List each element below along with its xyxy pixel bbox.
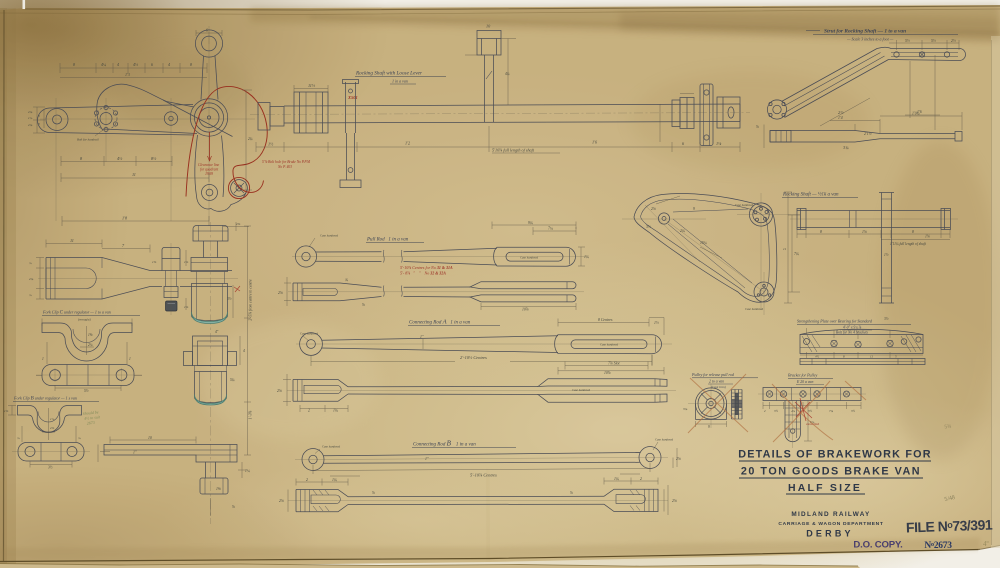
svg-text:1'-3⅞: 1'-3⅞ <box>249 410 253 419</box>
svg-text:2¾: 2¾ <box>680 229 685 233</box>
svg-text:1'2: 1'2 <box>405 141 410 146</box>
svg-text:2: 2 <box>306 478 308 482</box>
svg-text:5'-10⅞ Centres: 5'-10⅞ Centres <box>470 473 497 478</box>
svg-text:1″: 1″ <box>420 335 424 339</box>
svg-text:Bolt for No 4 brackets: Bolt for No 4 brackets <box>836 331 869 335</box>
svg-text:2: 2 <box>640 477 642 481</box>
svg-text:2½: 2½ <box>951 39 956 43</box>
svg-text:2673: 2673 <box>86 420 94 426</box>
svg-text:4¾: 4¾ <box>791 409 796 413</box>
svg-text:No P. 403: No P. 403 <box>277 165 292 169</box>
svg-text:1″: 1″ <box>133 451 137 455</box>
svg-text:1¾: 1¾ <box>50 417 55 421</box>
svg-text:4½: 4½ <box>815 355 820 359</box>
svg-text:Connecting Rod A 1 in a van: Connecting Rod A 1 in a van <box>409 319 471 326</box>
svg-text:8: 8 <box>912 230 914 234</box>
svg-text:5¾: 5¾ <box>944 423 952 431</box>
svg-text:1'6: 1'6 <box>592 140 598 145</box>
svg-text:Case hardened: Case hardened <box>320 234 338 238</box>
svg-text:7¼: 7¼ <box>829 409 834 413</box>
svg-text:8: 8 <box>820 230 822 234</box>
svg-text:7¾: 7¾ <box>794 252 799 256</box>
svg-text:1'8: 1'8 <box>122 216 128 221</box>
svg-text:2¼: 2¼ <box>28 110 33 114</box>
svg-text:5'10⅞ full length of shaft: 5'10⅞ full length of shaft <box>492 148 535 153</box>
svg-text:1'4: 1'4 <box>838 116 843 120</box>
svg-text:(wrought): (wrought) <box>78 318 91 322</box>
svg-text:Case hardened: Case hardened <box>520 256 538 260</box>
svg-text:Clearance line: Clearance line <box>198 163 220 167</box>
svg-text:⅞: ⅞ <box>570 491 573 495</box>
svg-text:Case hardened: Case hardened <box>745 307 763 311</box>
svg-text:2'-5⅞ from centre to centre: 2'-5⅞ from centre to centre <box>249 279 253 321</box>
svg-text:¾: ¾ <box>345 278 348 282</box>
svg-text:Case hardened: Case hardened <box>735 203 753 207</box>
svg-text:1½: 1½ <box>884 253 889 257</box>
svg-text:1¾: 1¾ <box>333 409 338 413</box>
svg-text:1¾: 1¾ <box>332 478 337 482</box>
svg-text:⅞: ⅞ <box>362 303 365 307</box>
svg-text:1½: 1½ <box>268 142 274 147</box>
svg-text:Case hardened: Case hardened <box>655 438 673 442</box>
svg-text:5¾: 5¾ <box>230 378 235 382</box>
svg-text:1: 1 <box>129 357 131 361</box>
svg-text:15¼: 15¼ <box>700 241 707 245</box>
svg-text:D.O. COPY.: D.O. COPY. <box>853 540 902 551</box>
svg-text:DETAILS OF BRAKEWORK FOR: DETAILS OF BRAKEWORK FOR <box>738 449 932 461</box>
svg-text:9¾: 9¾ <box>528 221 533 225</box>
svg-text:4½: 4½ <box>133 62 138 67</box>
svg-text:1'0¾: 1'0¾ <box>912 112 920 116</box>
svg-text:2⅛: 2⅛ <box>278 291 283 295</box>
svg-text:1⅝: 1⅝ <box>88 333 93 337</box>
svg-text:11: 11 <box>70 238 74 243</box>
svg-text:⅞: ⅞ <box>372 491 375 495</box>
svg-text:4: 4 <box>243 349 245 353</box>
svg-text:1⅝: 1⅝ <box>216 487 221 491</box>
svg-text:X501: X501 <box>347 95 358 100</box>
svg-text:6: 6 <box>206 28 208 33</box>
svg-text:2'-10½ Centres: 2'-10½ Centres <box>460 355 487 360</box>
svg-text:7⅞ Slot: 7⅞ Slot <box>608 362 621 366</box>
svg-text:8 Centres: 8 Centres <box>598 318 613 322</box>
svg-text:3¼: 3¼ <box>683 407 688 411</box>
svg-text:6: 6 <box>151 62 153 67</box>
svg-text:4″: 4″ <box>215 330 219 334</box>
svg-text:3½: 3½ <box>646 225 651 229</box>
svg-text:2¾: 2¾ <box>248 137 253 141</box>
svg-text:1¼: 1¼ <box>245 469 250 473</box>
svg-text:1⅛: 1⅛ <box>862 230 867 234</box>
svg-text:— Scale 3 inches to a foot —: — Scale 3 inches to a foot — <box>846 37 894 42</box>
svg-text:4¼: 4¼ <box>101 62 106 67</box>
svg-text:3½: 3½ <box>851 409 856 413</box>
svg-text:⅞: ⅞ <box>756 125 759 129</box>
svg-text:4¾: 4¾ <box>505 72 510 76</box>
svg-text:3½: 3½ <box>808 409 813 413</box>
svg-text:5½: 5½ <box>931 39 936 43</box>
svg-text:1 in a van: 1 in a van <box>392 79 408 84</box>
svg-text:5'⅛ Bolt hole for Brake No P.P: 5'⅛ Bolt hole for Brake No P.P.M <box>262 160 311 164</box>
svg-text:1⅛: 1⅛ <box>716 141 722 146</box>
svg-text:8: 8 <box>190 62 192 67</box>
svg-text:1: 1 <box>42 357 44 361</box>
svg-text:8: 8 <box>73 62 75 67</box>
svg-text:5½: 5½ <box>84 389 89 393</box>
svg-text:11: 11 <box>870 355 873 359</box>
svg-text:E 20 a van: E 20 a van <box>796 380 813 384</box>
svg-text:11: 11 <box>132 172 136 177</box>
svg-text:Case hardened: Case hardened <box>600 343 618 347</box>
svg-text:3: 3 <box>38 114 40 118</box>
svg-text:Rocking Shaft — ½TH a van: Rocking Shaft — ½TH a van <box>782 193 839 198</box>
svg-text:2⅛: 2⅛ <box>50 426 55 430</box>
svg-text:Case hardened: Case hardened <box>572 388 590 392</box>
svg-text:3: 3 <box>38 122 40 126</box>
svg-text:1½: 1½ <box>654 321 659 325</box>
svg-text:Rocking Shaft with Loose Lever: Rocking Shaft with Loose Lever <box>355 70 423 77</box>
svg-text:10⅞: 10⅞ <box>604 371 611 375</box>
svg-text:2¼: 2¼ <box>28 123 33 127</box>
svg-text:3½: 3½ <box>227 297 232 301</box>
svg-text:2½: 2½ <box>838 110 844 115</box>
svg-text:2¼: 2¼ <box>88 343 93 347</box>
svg-text:2 to a van: 2 to a van <box>709 380 724 384</box>
svg-text:Case hardened: Case hardened <box>322 445 340 449</box>
svg-text:3¾: 3¾ <box>843 145 849 150</box>
svg-text:Pull Rod 1 in a van: Pull Rod 1 in a van <box>366 238 409 243</box>
svg-text:7¼: 7¼ <box>548 227 553 231</box>
svg-text:11½: 11½ <box>308 83 316 88</box>
svg-text:1⅝: 1⅝ <box>152 260 157 264</box>
svg-text:3½: 3½ <box>774 409 779 413</box>
svg-text:2⅛: 2⅛ <box>277 389 282 393</box>
svg-text:1⅛: 1⅛ <box>925 235 930 239</box>
svg-text:Bolt for handrail: Bolt for handrail <box>77 138 99 142</box>
svg-text:Bracket for Pulley: Bracket for Pulley <box>788 373 818 378</box>
svg-text:4: 4 <box>117 62 119 67</box>
svg-text:cancelled: cancelled <box>806 422 819 426</box>
svg-text:1¾: 1¾ <box>614 477 619 481</box>
svg-text:4½: 4½ <box>117 156 123 161</box>
svg-text:⅞: ⅞ <box>232 505 235 509</box>
svg-text:1¾: 1¾ <box>28 116 33 120</box>
svg-text:MIDLAND RAILWAY: MIDLAND RAILWAY <box>791 511 870 518</box>
svg-text:2: 2 <box>308 409 310 413</box>
svg-text:Strut for Rocking Shaft — 1 to: Strut for Rocking Shaft — 1 to a van <box>824 29 906 35</box>
svg-text:1'11¾ full length of shaft: 1'11¾ full length of shaft <box>890 242 927 246</box>
svg-text:1'3: 1'3 <box>125 72 130 77</box>
svg-text:1¾: 1¾ <box>584 255 589 259</box>
svg-text:9: 9 <box>708 425 710 429</box>
svg-text:20 TON GOODS BRAKE VAN: 20 TON GOODS BRAKE VAN <box>741 466 921 478</box>
svg-text:10⅞: 10⅞ <box>522 308 529 312</box>
svg-text:2⅛: 2⅛ <box>676 457 681 461</box>
svg-text:5'- 8⅞ ″ ″ No 32 & 32A: 5'- 8⅞ ″ ″ No 32 & 32A <box>400 271 446 276</box>
svg-text:HALF SIZE: HALF SIZE <box>788 482 862 494</box>
svg-text:2⅛: 2⅛ <box>651 207 656 211</box>
svg-text:3½: 3½ <box>48 466 53 470</box>
svg-text:10: 10 <box>148 436 152 440</box>
svg-text:5½: 5½ <box>905 39 910 43</box>
svg-text:CARRIAGE & WAGON DEPARTMENT: CARRIAGE & WAGON DEPARTMENT <box>778 521 883 527</box>
svg-text:11: 11 <box>783 247 786 251</box>
svg-text:2⅝: 2⅝ <box>236 222 241 226</box>
svg-text:Pulley for release pull rod: Pulley for release pull rod <box>691 372 735 377</box>
svg-text:1⅛: 1⅛ <box>184 260 189 264</box>
svg-text:No2673: No2673 <box>924 541 952 551</box>
svg-text:4º: 4º <box>983 540 990 548</box>
svg-text:1⅛: 1⅛ <box>184 305 189 309</box>
svg-text:4: 4 <box>168 62 170 67</box>
svg-text:5'-10⅞ Centres for No 31 & 31A: 5'-10⅞ Centres for No 31 & 31A <box>400 265 453 270</box>
svg-text:2¼: 2¼ <box>29 277 34 281</box>
svg-text:DERBY: DERBY <box>806 529 854 539</box>
svg-text:2⅛: 2⅛ <box>672 499 677 503</box>
svg-text:Strengthening Plate over Beari: Strengthening Plate over Bearing for Sta… <box>797 319 873 324</box>
svg-text:1⅛: 1⅛ <box>4 409 9 413</box>
svg-text:1″: 1″ <box>425 457 429 461</box>
svg-text:3½: 3½ <box>884 317 889 321</box>
svg-text:2⅛: 2⅛ <box>279 499 284 503</box>
svg-text:8½: 8½ <box>151 156 157 161</box>
svg-text:9: 9 <box>693 207 695 211</box>
